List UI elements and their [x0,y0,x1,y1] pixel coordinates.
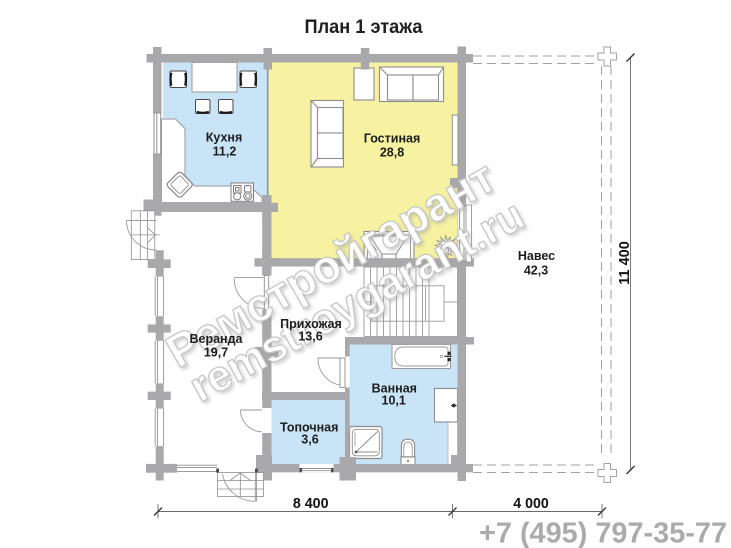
svg-text:10,1: 10,1 [382,394,406,408]
svg-text:28,8: 28,8 [380,145,404,159]
svg-text:Гостиная: Гостиная [364,132,421,146]
svg-text:8 400: 8 400 [293,496,329,512]
svg-text:Навес: Навес [518,249,555,263]
svg-text:11,2: 11,2 [213,145,237,159]
svg-text:4 000: 4 000 [513,496,549,512]
svg-text:19,7: 19,7 [204,346,228,360]
svg-text:11 400: 11 400 [617,241,633,285]
svg-text:13,6: 13,6 [298,330,322,344]
svg-text:Кухня: Кухня [206,131,243,145]
svg-text:Веранда: Веранда [189,332,243,346]
svg-text:42,3: 42,3 [524,264,548,278]
svg-text:План 1 этажа: План 1 этажа [305,16,423,38]
svg-text:+7 (495) 797-35-77: +7 (495) 797-35-77 [479,518,727,548]
svg-text:3,6: 3,6 [301,433,318,447]
